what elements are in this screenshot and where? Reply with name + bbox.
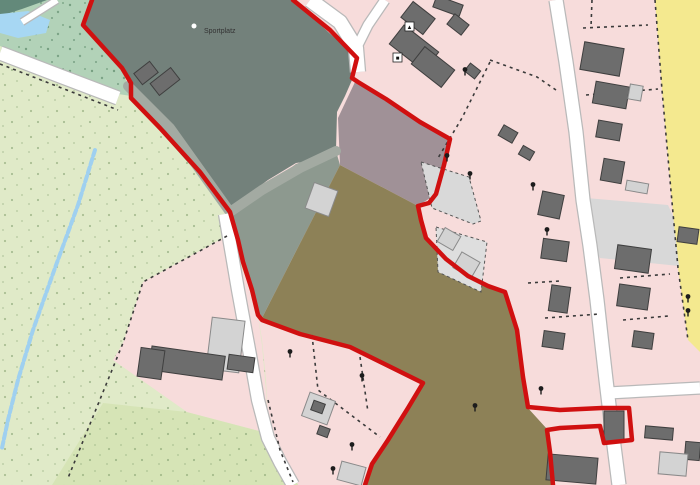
tree-crown [463,67,468,72]
building-dark [538,191,565,219]
building-dark [600,158,625,183]
tree-crown [350,442,355,447]
building-dark [541,238,570,261]
map-symbol-glyph: ■ [396,56,400,62]
building-dark [596,120,623,141]
tree-crown [445,153,450,158]
map-symbol-icon: ■ [393,53,402,62]
tree-crown [686,294,691,299]
tree-crown [360,373,365,378]
building-dark [614,245,651,273]
building-light [628,84,643,101]
building-dark [632,331,654,350]
tree-crown [686,308,691,313]
building-dark [677,227,699,245]
building-dark [617,284,651,310]
tree-crown [539,386,544,391]
building-dark [645,426,674,440]
map-symbol-icon: ▲ [405,22,414,31]
tree-crown [545,227,550,232]
building-dark [548,285,570,313]
building-dark [227,354,255,372]
map-symbol-glyph: ▲ [407,25,413,31]
road-branch-east [608,388,700,393]
tree-crown [531,182,536,187]
building-dark [604,411,624,441]
building-dark [137,347,165,379]
tree-crown [331,466,336,471]
tree-crown [288,349,293,354]
building-dark [542,331,565,350]
white-dot-marker [192,24,197,29]
sports-ground-label: Sportplatz [204,28,236,35]
tree-crown [468,171,473,176]
map-viewport[interactable]: ▲■Sportplatz [0,0,700,485]
map-canvas[interactable]: ▲■Sportplatz [0,0,700,485]
tree-crown [473,403,478,408]
building-light [658,452,688,476]
